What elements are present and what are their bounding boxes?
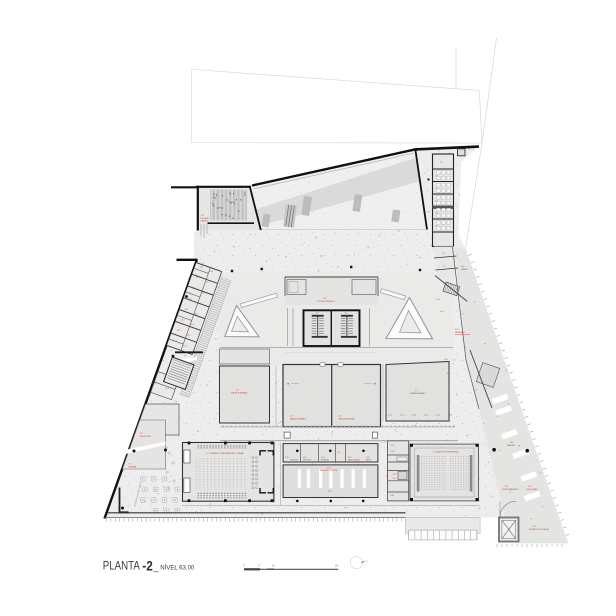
svg-text:4.03: 4.03 <box>510 442 514 444</box>
svg-text:SALA DE ENSAIO: SALA DE ENSAIO <box>339 418 356 421</box>
svg-text:4.01: 4.01 <box>328 491 332 493</box>
svg-text:EMERG.: EMERG. <box>201 221 209 223</box>
svg-text:4.2.2: 4.2.2 <box>187 335 191 337</box>
svg-text:4.4.1: 4.4.1 <box>184 309 188 311</box>
svg-text:4.6.1: 4.6.1 <box>192 288 196 290</box>
svg-text:INSTRUM.: INSTRUM. <box>321 459 330 461</box>
svg-text:7.2: 7.2 <box>140 433 143 435</box>
svg-text:1.9: 1.9 <box>435 200 438 202</box>
svg-text:7.3: 7.3 <box>128 464 131 466</box>
svg-text:1.9: 1.9 <box>435 175 438 177</box>
svg-text:GUARDA SALÃO: GUARDA SALÃO <box>410 392 426 395</box>
svg-text:4.5.1: 4.5.1 <box>188 298 192 300</box>
svg-text:CIRCULAÇÃO: CIRCULAÇÃO <box>526 488 538 491</box>
svg-text:1.9: 1.9 <box>435 213 438 215</box>
svg-text:1.6.5: 1.6.5 <box>436 415 440 417</box>
svg-text:4.7.2: 4.7.2 <box>206 282 210 284</box>
svg-text:4.01: 4.01 <box>327 467 331 469</box>
svg-text:4.6.4: 4.6.4 <box>436 299 440 301</box>
svg-text:1.6.3: 1.6.3 <box>412 415 416 417</box>
svg-text:4.03: 4.03 <box>505 486 509 488</box>
svg-text:N: N <box>366 559 368 563</box>
svg-text:1.6.1: 1.6.1 <box>388 415 392 417</box>
svg-text:4.1.1: 4.1.1 <box>173 341 177 343</box>
svg-text:1.2: 1.2 <box>316 313 319 315</box>
svg-text:MANUTENÇÃO: MANUTENÇÃO <box>348 458 361 461</box>
svg-text:4.7.1: 4.7.1 <box>196 277 200 279</box>
svg-text:1.9: 1.9 <box>435 226 438 228</box>
svg-text:1.6: 1.6 <box>442 253 445 255</box>
svg-text:SALA DE CONTROL: SALA DE CONTROL <box>320 469 338 472</box>
svg-text:4.10: 4.10 <box>285 457 289 459</box>
svg-text:4.8.1: 4.8.1 <box>200 267 204 269</box>
svg-text:1.6.4: 1.6.4 <box>424 415 428 417</box>
svg-text:4.5.2: 4.5.2 <box>391 451 395 453</box>
svg-text:4.6.2: 4.6.2 <box>202 292 206 294</box>
svg-text:_: _ <box>153 562 160 572</box>
svg-text:SALA DE ENSAIO: SALA DE ENSAIO <box>290 418 307 421</box>
svg-text:2.1 GRANDE CONFERÊNCIAS / ENS: 2.1 GRANDE CONFERÊNCIAS / ENSAIO <box>207 452 245 455</box>
svg-text:1.6: 1.6 <box>443 266 446 268</box>
svg-text:4.3.2: 4.3.2 <box>393 474 397 476</box>
svg-text:1.6.2: 1.6.2 <box>400 415 404 417</box>
svg-text:4.5.1: 4.5.1 <box>391 445 395 447</box>
svg-text:4.5.1: 4.5.1 <box>152 383 156 385</box>
svg-text:4.3.1: 4.3.1 <box>393 478 397 480</box>
svg-text:MEZANINO: MEZANINO <box>455 331 466 334</box>
svg-text:1.9: 1.9 <box>435 188 438 190</box>
svg-text:4.2.1: 4.2.1 <box>177 330 181 332</box>
svg-text:BIBLIOTECA: BIBLIOTECA <box>140 435 151 438</box>
svg-text:4.6.3: 4.6.3 <box>440 311 444 313</box>
svg-text:LIVRARIA: LIVRARIA <box>128 466 137 469</box>
svg-text:DEPÓSITO: DEPÓSITO <box>303 458 312 461</box>
svg-text:1.2: 1.2 <box>345 313 348 315</box>
svg-text:1.10: 1.10 <box>532 526 536 528</box>
svg-text:4.4.3: 4.4.3 <box>165 388 169 390</box>
svg-text:4.6.2: 4.6.2 <box>455 329 459 331</box>
svg-text:FOYER TÉCNICO: FOYER TÉCNICO <box>317 300 335 303</box>
svg-text:4.02: 4.02 <box>447 373 451 375</box>
svg-text:RAMPA: RAMPA <box>461 268 468 271</box>
svg-text:PLANTA: PLANTA <box>103 559 141 573</box>
svg-text:4.3.1: 4.3.1 <box>181 320 185 322</box>
svg-text:4.1.2: 4.1.2 <box>183 345 187 347</box>
svg-text:4.4.1: 4.4.1 <box>147 395 151 397</box>
svg-text:4.6.1: 4.6.1 <box>444 359 448 361</box>
svg-text:ELEVADOR DE CARGA: ELEVADOR DE CARGA <box>529 528 549 531</box>
svg-text:NÍVEL 63.00: NÍVEL 63.00 <box>160 562 194 571</box>
svg-text:ESTACIONAMENTO: ESTACIONAMENTO <box>502 488 519 491</box>
svg-text:1.6.6: 1.6.6 <box>448 415 452 417</box>
svg-text:4.05: 4.05 <box>391 495 395 497</box>
svg-text:0.1: 0.1 <box>320 256 323 258</box>
svg-text:ARQUIVO: ARQUIVO <box>291 458 299 461</box>
svg-text:2.3 TEATRO EXPERIMENTAL: 2.3 TEATRO EXPERIMENTAL <box>433 450 459 453</box>
svg-text:4.5.2: 4.5.2 <box>198 303 202 305</box>
svg-text:SALA DE ENSAIO: SALA DE ENSAIO <box>231 392 248 395</box>
svg-text:4.12: 4.12 <box>337 452 341 454</box>
svg-text:4.03: 4.03 <box>461 266 465 268</box>
svg-text:4.03: 4.03 <box>528 486 532 488</box>
svg-text:-2: -2 <box>142 558 153 573</box>
svg-text:4.4.2: 4.4.2 <box>194 314 198 316</box>
svg-text:4.3.2: 4.3.2 <box>191 324 195 326</box>
svg-text:4.8.2: 4.8.2 <box>210 271 214 273</box>
svg-text:PARKING: PARKING <box>507 444 516 447</box>
svg-text:APOIO: APOIO <box>366 458 372 461</box>
